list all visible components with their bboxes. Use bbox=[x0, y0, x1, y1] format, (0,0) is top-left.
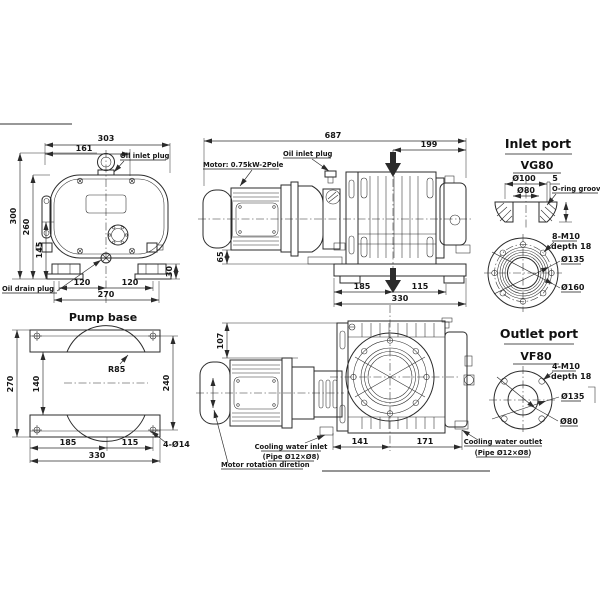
inlet-port-detail: Inlet port VG80 Ø100 5 Ø80 O-ring groove bbox=[484, 136, 600, 312]
outlet-port-detail: Outlet port VF80 4-M10 depth 18 Ø135 Ø80 bbox=[489, 326, 592, 434]
cooling-inlet-pipe-label: (Pipe Ø12×Ø8) bbox=[263, 453, 320, 461]
dim-107: 107 bbox=[216, 333, 225, 350]
dim-base-330: 330 bbox=[89, 451, 106, 460]
oil-inlet-leader bbox=[114, 161, 124, 172]
dim-r85: R85 bbox=[108, 365, 126, 374]
mounting-feet bbox=[47, 264, 171, 279]
rotation-leader bbox=[214, 410, 228, 463]
dim-inlet-135: Ø135 bbox=[561, 254, 585, 264]
dim-260: 260 bbox=[22, 218, 31, 235]
oil-inlet-plug-label-side: Oil inlet plug bbox=[283, 150, 333, 158]
dim-270: 270 bbox=[98, 290, 115, 299]
oil-box-plan bbox=[445, 332, 467, 427]
front-view: 303 161 300 260 145 120 120 270 30 Oil i… bbox=[2, 134, 180, 305]
dim-115: 115 bbox=[412, 282, 429, 291]
dim-inlet-80: Ø80 bbox=[517, 185, 535, 195]
dim-120-right: 120 bbox=[122, 278, 139, 287]
dim-base-140: 140 bbox=[32, 375, 41, 392]
motor-spec-label: Motor: 0.75kW-2Pole bbox=[203, 161, 284, 169]
dim-base-115: 115 bbox=[122, 438, 139, 447]
dim-120-left: 120 bbox=[74, 278, 91, 287]
plan-view: 107 141 171 Cooling water inlet (Pipe Ø1… bbox=[196, 305, 543, 471]
outlet-bolt-depth: depth 18 bbox=[551, 372, 592, 381]
pump-base-title: Pump base bbox=[69, 311, 137, 324]
cooling-inlet-leader bbox=[305, 435, 325, 443]
dim-outlet-135: Ø135 bbox=[561, 391, 585, 401]
flow-arrow-bottom bbox=[385, 268, 401, 293]
pump-block-plan bbox=[337, 318, 474, 433]
base-bottom-plate bbox=[30, 415, 160, 437]
dim-30: 30 bbox=[165, 266, 174, 278]
inlet-flange-face: 8-M10 depth 18 Ø135 Ø160 bbox=[484, 232, 592, 312]
motor-spec-leader bbox=[240, 170, 252, 186]
dim-inlet-100: Ø100 bbox=[512, 173, 536, 183]
dim-687: 687 bbox=[325, 131, 342, 140]
inlet-section: Ø100 5 Ø80 O-ring groove bbox=[495, 173, 600, 228]
dim-145: 145 bbox=[35, 241, 44, 258]
rotation-label: Motor rotation diretion bbox=[221, 461, 310, 469]
dim-outlet-80: Ø80 bbox=[560, 416, 578, 426]
r85-leader bbox=[120, 355, 128, 364]
dim-161: 161 bbox=[76, 144, 93, 153]
inlet-bolt-depth: depth 18 bbox=[551, 242, 592, 251]
dim-171: 171 bbox=[417, 437, 434, 446]
oil-inlet-plug bbox=[325, 171, 336, 177]
oil-inlet-leader-side bbox=[312, 159, 329, 171]
side-view: 687 199 65 185 115 330 Motor: 0.75kW-2Po… bbox=[198, 131, 472, 307]
oring-groove-label: O-ring groove bbox=[552, 185, 600, 193]
gear-housing bbox=[291, 171, 345, 264]
outlet-flange-face: 4-M10 depth 18 Ø135 Ø80 bbox=[489, 362, 592, 434]
dim-base-240: 240 bbox=[162, 374, 171, 391]
dim-330: 330 bbox=[392, 294, 409, 303]
oil-drain-plug-label: Oil drain plug bbox=[2, 285, 54, 293]
dim-199: 199 bbox=[421, 140, 438, 149]
inlet-port-size: VG80 bbox=[521, 159, 554, 172]
oil-sight-window bbox=[326, 190, 340, 204]
outlet-bolts-label: 4-M10 bbox=[552, 362, 580, 371]
dim-base-270: 270 bbox=[6, 375, 15, 392]
dim-65: 65 bbox=[216, 251, 225, 263]
outlet-port-size: VF80 bbox=[520, 350, 552, 363]
outlet-port-title: Outlet port bbox=[500, 326, 578, 341]
oil-filler-port bbox=[108, 225, 128, 245]
inlet-port-title: Inlet port bbox=[505, 136, 571, 151]
dim-inlet-160: Ø160 bbox=[561, 282, 585, 292]
stray-mark-right bbox=[588, 387, 595, 403]
drawing-canvas: 303 161 300 260 145 120 120 270 30 Oil i… bbox=[0, 0, 600, 600]
cooling-outlet-fitting bbox=[455, 421, 468, 429]
pump-base-view: Pump base R85 270 140 240 185 115 330 4- bbox=[6, 311, 190, 463]
dim-base-holes: 4-Ø14 bbox=[163, 439, 190, 449]
dim-300: 300 bbox=[9, 207, 18, 224]
oring-leader bbox=[547, 194, 556, 205]
cooling-outlet-label: Cooling water outlet bbox=[464, 438, 543, 446]
pump-block bbox=[346, 172, 470, 264]
dim-303: 303 bbox=[98, 134, 115, 143]
engineering-drawing: 303 161 300 260 145 120 120 270 30 Oil i… bbox=[0, 0, 600, 600]
oil-inlet-plug-label: Oil inlet plug bbox=[120, 152, 170, 160]
base-top-plate bbox=[30, 330, 160, 352]
cooling-inlet-label: Cooling water inlet bbox=[255, 443, 329, 451]
cooling-outlet-pipe-label: (Pipe Ø12×Ø8) bbox=[475, 449, 532, 457]
cooling-inlet-fitting bbox=[320, 427, 333, 435]
inlet-bolts-label: 8-M10 bbox=[552, 232, 580, 241]
motor bbox=[203, 185, 291, 252]
dim-185: 185 bbox=[354, 282, 371, 291]
dim-base-185: 185 bbox=[60, 438, 77, 447]
dim-141: 141 bbox=[352, 437, 369, 446]
pump-casing bbox=[50, 175, 168, 258]
flow-arrow-top bbox=[385, 152, 401, 177]
dim-inlet-5: 5 bbox=[552, 174, 558, 183]
